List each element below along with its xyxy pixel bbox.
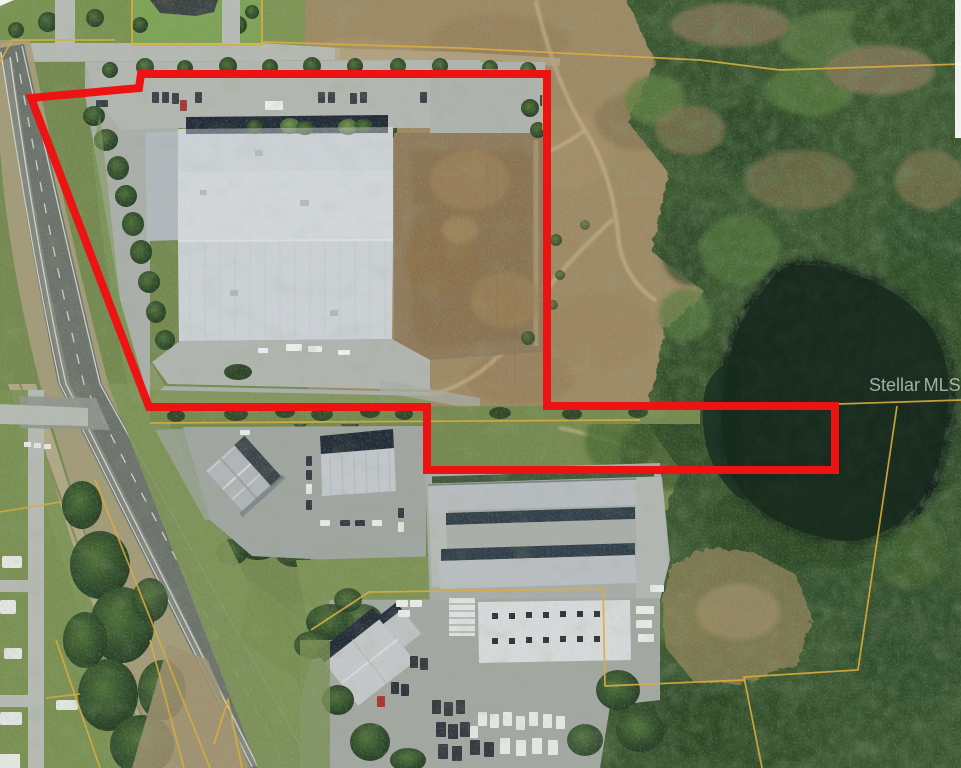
svg-text:Stellar MLS: Stellar MLS [869,375,961,395]
